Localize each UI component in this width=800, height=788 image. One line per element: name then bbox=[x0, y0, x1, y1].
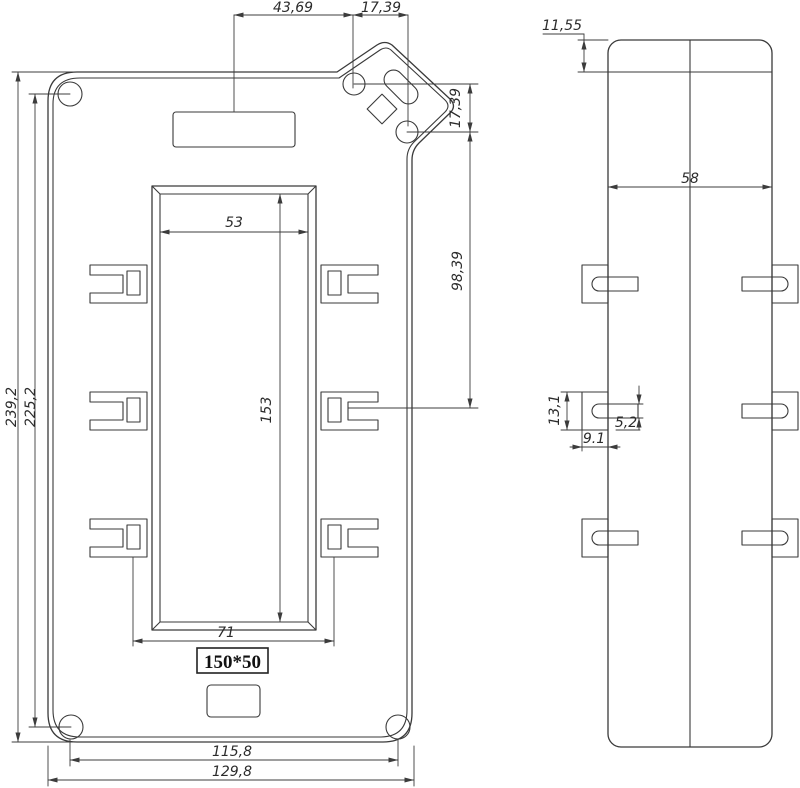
front-view bbox=[48, 43, 454, 743]
dim-label-clip-height: 13,1 bbox=[547, 394, 563, 425]
side-clip-right-middle-slot bbox=[742, 404, 788, 418]
clip-left-top-slot bbox=[127, 271, 140, 295]
opening-inner-frame bbox=[160, 194, 308, 622]
engineering-drawing: 43,69 17,39 17,39 98,39 239,2 225,2 53 1… bbox=[0, 0, 800, 788]
side-clip-right-top bbox=[772, 265, 798, 303]
tab-square-hole bbox=[367, 94, 397, 124]
dim-label-clip-slot-span: 71 bbox=[217, 625, 235, 641]
opening-chamfer bbox=[308, 186, 316, 194]
opening-chamfer bbox=[308, 622, 316, 630]
dim-label-clip-depth: 9.1 bbox=[583, 431, 605, 447]
side-clip-left-top-slot bbox=[592, 277, 638, 291]
clip-left-bottom-slot bbox=[127, 525, 140, 549]
clip-right-bottom-slot bbox=[328, 525, 341, 549]
corner-tab-features bbox=[343, 66, 422, 143]
dim-label-hole-span-width: 115,8 bbox=[212, 744, 252, 760]
bottom-label-recess bbox=[207, 685, 260, 717]
clip-right-top-slot bbox=[328, 271, 341, 295]
side-clip-right-bottom bbox=[772, 519, 798, 557]
dim-label-tab-to-middle-clip: 98,39 bbox=[450, 251, 466, 291]
dim-label-opening-width: 53 bbox=[225, 215, 243, 231]
side-clip-right-bottom-slot bbox=[742, 531, 788, 545]
technical-drawing-canvas: 43,69 17,39 17,39 98,39 239,2 225,2 53 1… bbox=[0, 0, 800, 788]
opening-chamfer bbox=[152, 622, 160, 630]
side-clip-left-bottom bbox=[582, 519, 608, 557]
dim-label-overall-width: 129,8 bbox=[212, 764, 252, 780]
mount-hole-bottom-right bbox=[386, 715, 410, 739]
dim-label-slot-height: 5,2 bbox=[615, 415, 637, 431]
clip-left-middle-slot bbox=[127, 398, 140, 422]
dim-label-top-band: 11,55 bbox=[542, 18, 582, 34]
side-clip-right-top-slot bbox=[742, 277, 788, 291]
side-clip-right-middle bbox=[772, 392, 798, 430]
side-clip-left-bottom-slot bbox=[592, 531, 638, 545]
dim-label-depth: 58 bbox=[681, 171, 699, 187]
dim-label-hole-span-height: 225,2 bbox=[23, 387, 39, 427]
dim-label-tab-hole-offset: 17,39 bbox=[448, 88, 464, 128]
dim-label-top-span-left: 43,69 bbox=[273, 0, 313, 16]
opening-chamfer bbox=[152, 186, 160, 194]
dim-label-top-span-right: 17,39 bbox=[361, 0, 401, 16]
size-label-text: 150*50 bbox=[204, 652, 261, 673]
opening-outer-frame bbox=[152, 186, 316, 630]
side-view bbox=[582, 40, 798, 747]
side-clip-left-middle bbox=[582, 392, 608, 430]
front-view-clips bbox=[90, 265, 378, 557]
side-clip-left-top bbox=[582, 265, 608, 303]
central-opening bbox=[152, 186, 316, 630]
dim-label-opening-height: 153 bbox=[259, 397, 275, 424]
side-view-dimensions: 11,55 58 13,1 5,2 9.1 bbox=[542, 18, 772, 451]
clip-right-middle-slot bbox=[328, 398, 341, 422]
dim-label-overall-height: 239,2 bbox=[4, 387, 20, 427]
top-label-recess bbox=[173, 112, 295, 147]
